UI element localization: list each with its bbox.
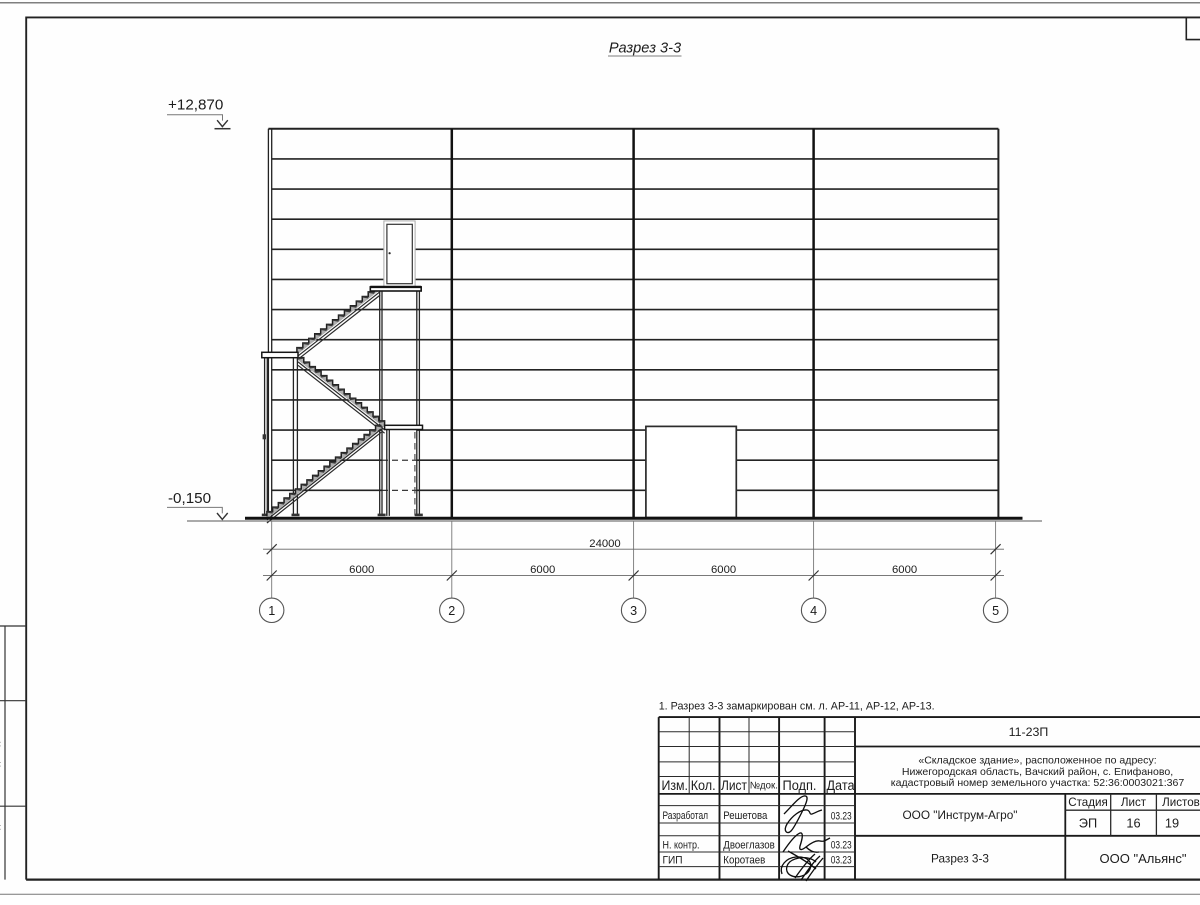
svg-text:+12,870: +12,870 — [168, 97, 223, 114]
svg-text:ЭП: ЭП — [1079, 816, 1097, 831]
svg-text:16: 16 — [1126, 816, 1140, 831]
svg-text:Подп.: Подп. — [783, 778, 817, 794]
svg-text:Подп. и дата: Подп. и дата — [0, 729, 1, 777]
svg-text:Кол.: Кол. — [691, 778, 716, 794]
svg-text:03.23: 03.23 — [831, 810, 852, 822]
svg-text:3: 3 — [630, 604, 637, 618]
svg-text:6000: 6000 — [530, 564, 555, 576]
svg-text:кадастровый номер земельного у: кадастровый номер земельного участка: 52… — [891, 777, 1185, 789]
svg-text:Дата: Дата — [827, 778, 855, 794]
svg-text:«Складское здание», расположен: «Складское здание», расположенное по адр… — [918, 755, 1156, 767]
svg-text:-0,150: -0,150 — [168, 490, 211, 507]
svg-text:Стадия: Стадия — [1068, 796, 1108, 809]
svg-text:2: 2 — [448, 604, 455, 618]
svg-text:Разрез 3-3: Разрез 3-3 — [609, 41, 681, 57]
svg-text:Решетова: Решетова — [723, 810, 767, 822]
svg-text:Двоеглазов: Двоеглазов — [723, 839, 775, 851]
svg-text:Изм.: Изм. — [662, 778, 689, 794]
svg-text:Разработал: Разработал — [663, 810, 709, 822]
svg-text:ГИП: ГИП — [663, 854, 683, 866]
svg-text:4: 4 — [810, 604, 817, 618]
svg-text:1: 1 — [268, 604, 275, 618]
svg-text:03.23: 03.23 — [831, 855, 852, 867]
svg-text:Разрез 3-3: Разрез 3-3 — [931, 851, 989, 865]
svg-text:Лист: Лист — [1121, 796, 1147, 809]
svg-text:Нижегородская область, Вачский: Нижегородская область, Вачский район, с.… — [902, 766, 1173, 778]
svg-text:6000: 6000 — [349, 564, 374, 576]
svg-text:ООО "Инструм-Агро": ООО "Инструм-Агро" — [902, 808, 1017, 822]
svg-text:Коротаев: Коротаев — [723, 854, 765, 866]
svg-text:ООО "Альянс": ООО "Альянс" — [1100, 851, 1187, 866]
svg-text:№док.: №док. — [750, 781, 778, 792]
svg-text:Лист: Лист — [721, 778, 747, 794]
svg-text:03.23: 03.23 — [831, 840, 852, 852]
svg-text:24000: 24000 — [589, 538, 620, 550]
svg-text:5: 5 — [992, 604, 999, 618]
svg-text:Взам. инв. №: Взам. инв. № — [0, 638, 1, 688]
svg-text:6000: 6000 — [711, 564, 736, 576]
svg-text:Н. контр.: Н. контр. — [663, 839, 700, 851]
svg-text:19: 19 — [1165, 816, 1179, 831]
svg-text:6000: 6000 — [892, 564, 917, 576]
svg-text:Листов: Листов — [1162, 796, 1200, 809]
svg-text:11-23П: 11-23П — [1009, 725, 1049, 739]
svg-text:1. Разрез 3-3 замаркирован см.: 1. Разрез 3-3 замаркирован см. л. АР-11,… — [659, 701, 935, 713]
svg-text:Инв. № подл.: Инв. № подл. — [0, 818, 1, 868]
